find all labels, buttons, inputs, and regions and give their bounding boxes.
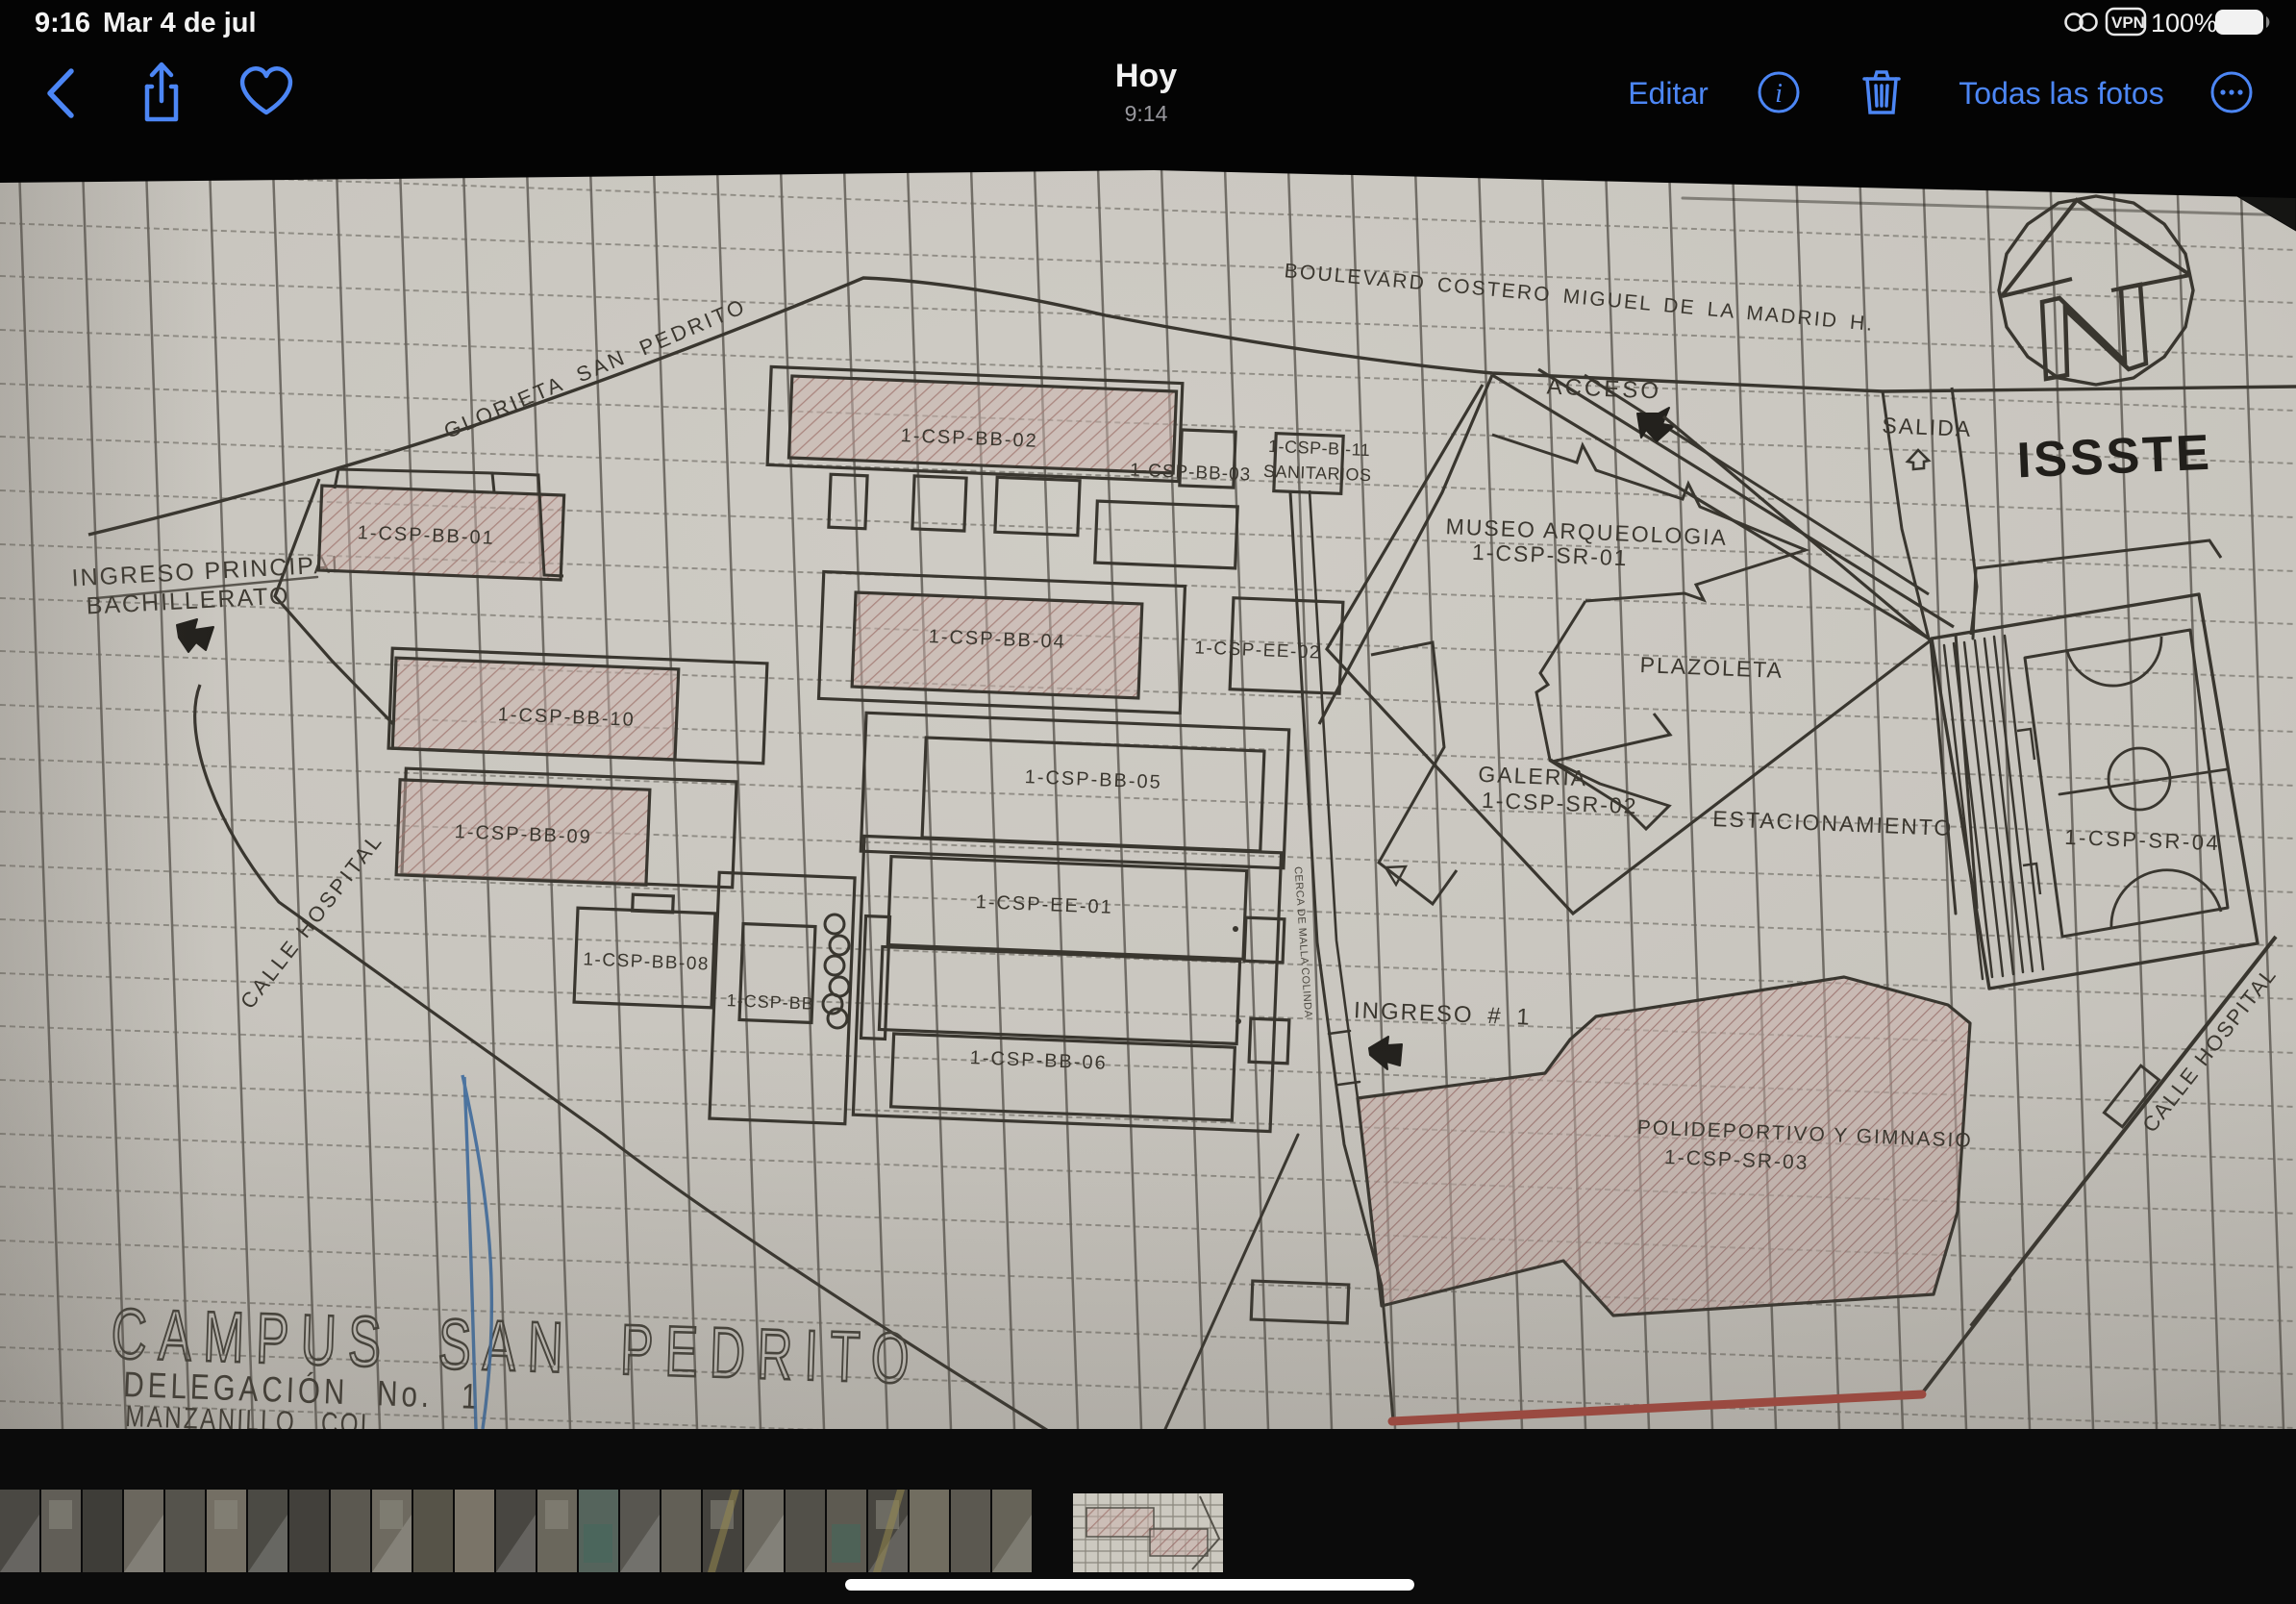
svg-text:Mar 4 de jul: Mar 4 de jul <box>103 8 257 38</box>
svg-text:i: i <box>1775 79 1783 109</box>
svg-text:Todas las fotos: Todas las fotos <box>1959 76 2163 111</box>
svg-text:1-CSP-BI-11: 1-CSP-BI-11 <box>1268 437 1371 460</box>
svg-text:Hoy: Hoy <box>1115 58 1177 94</box>
svg-text:Editar: Editar <box>1628 76 1709 111</box>
svg-text:ACCESO: ACCESO <box>1546 373 1661 404</box>
svg-text:9:14: 9:14 <box>1125 101 1168 126</box>
svg-text:ISSSTE: ISSSTE <box>2016 425 2213 489</box>
svg-text:VPN: VPN <box>2111 13 2145 32</box>
svg-text:100%: 100% <box>2151 9 2217 38</box>
svg-text:GALERIA: GALERIA <box>1478 762 1588 791</box>
svg-text:9:16: 9:16 <box>35 8 90 38</box>
